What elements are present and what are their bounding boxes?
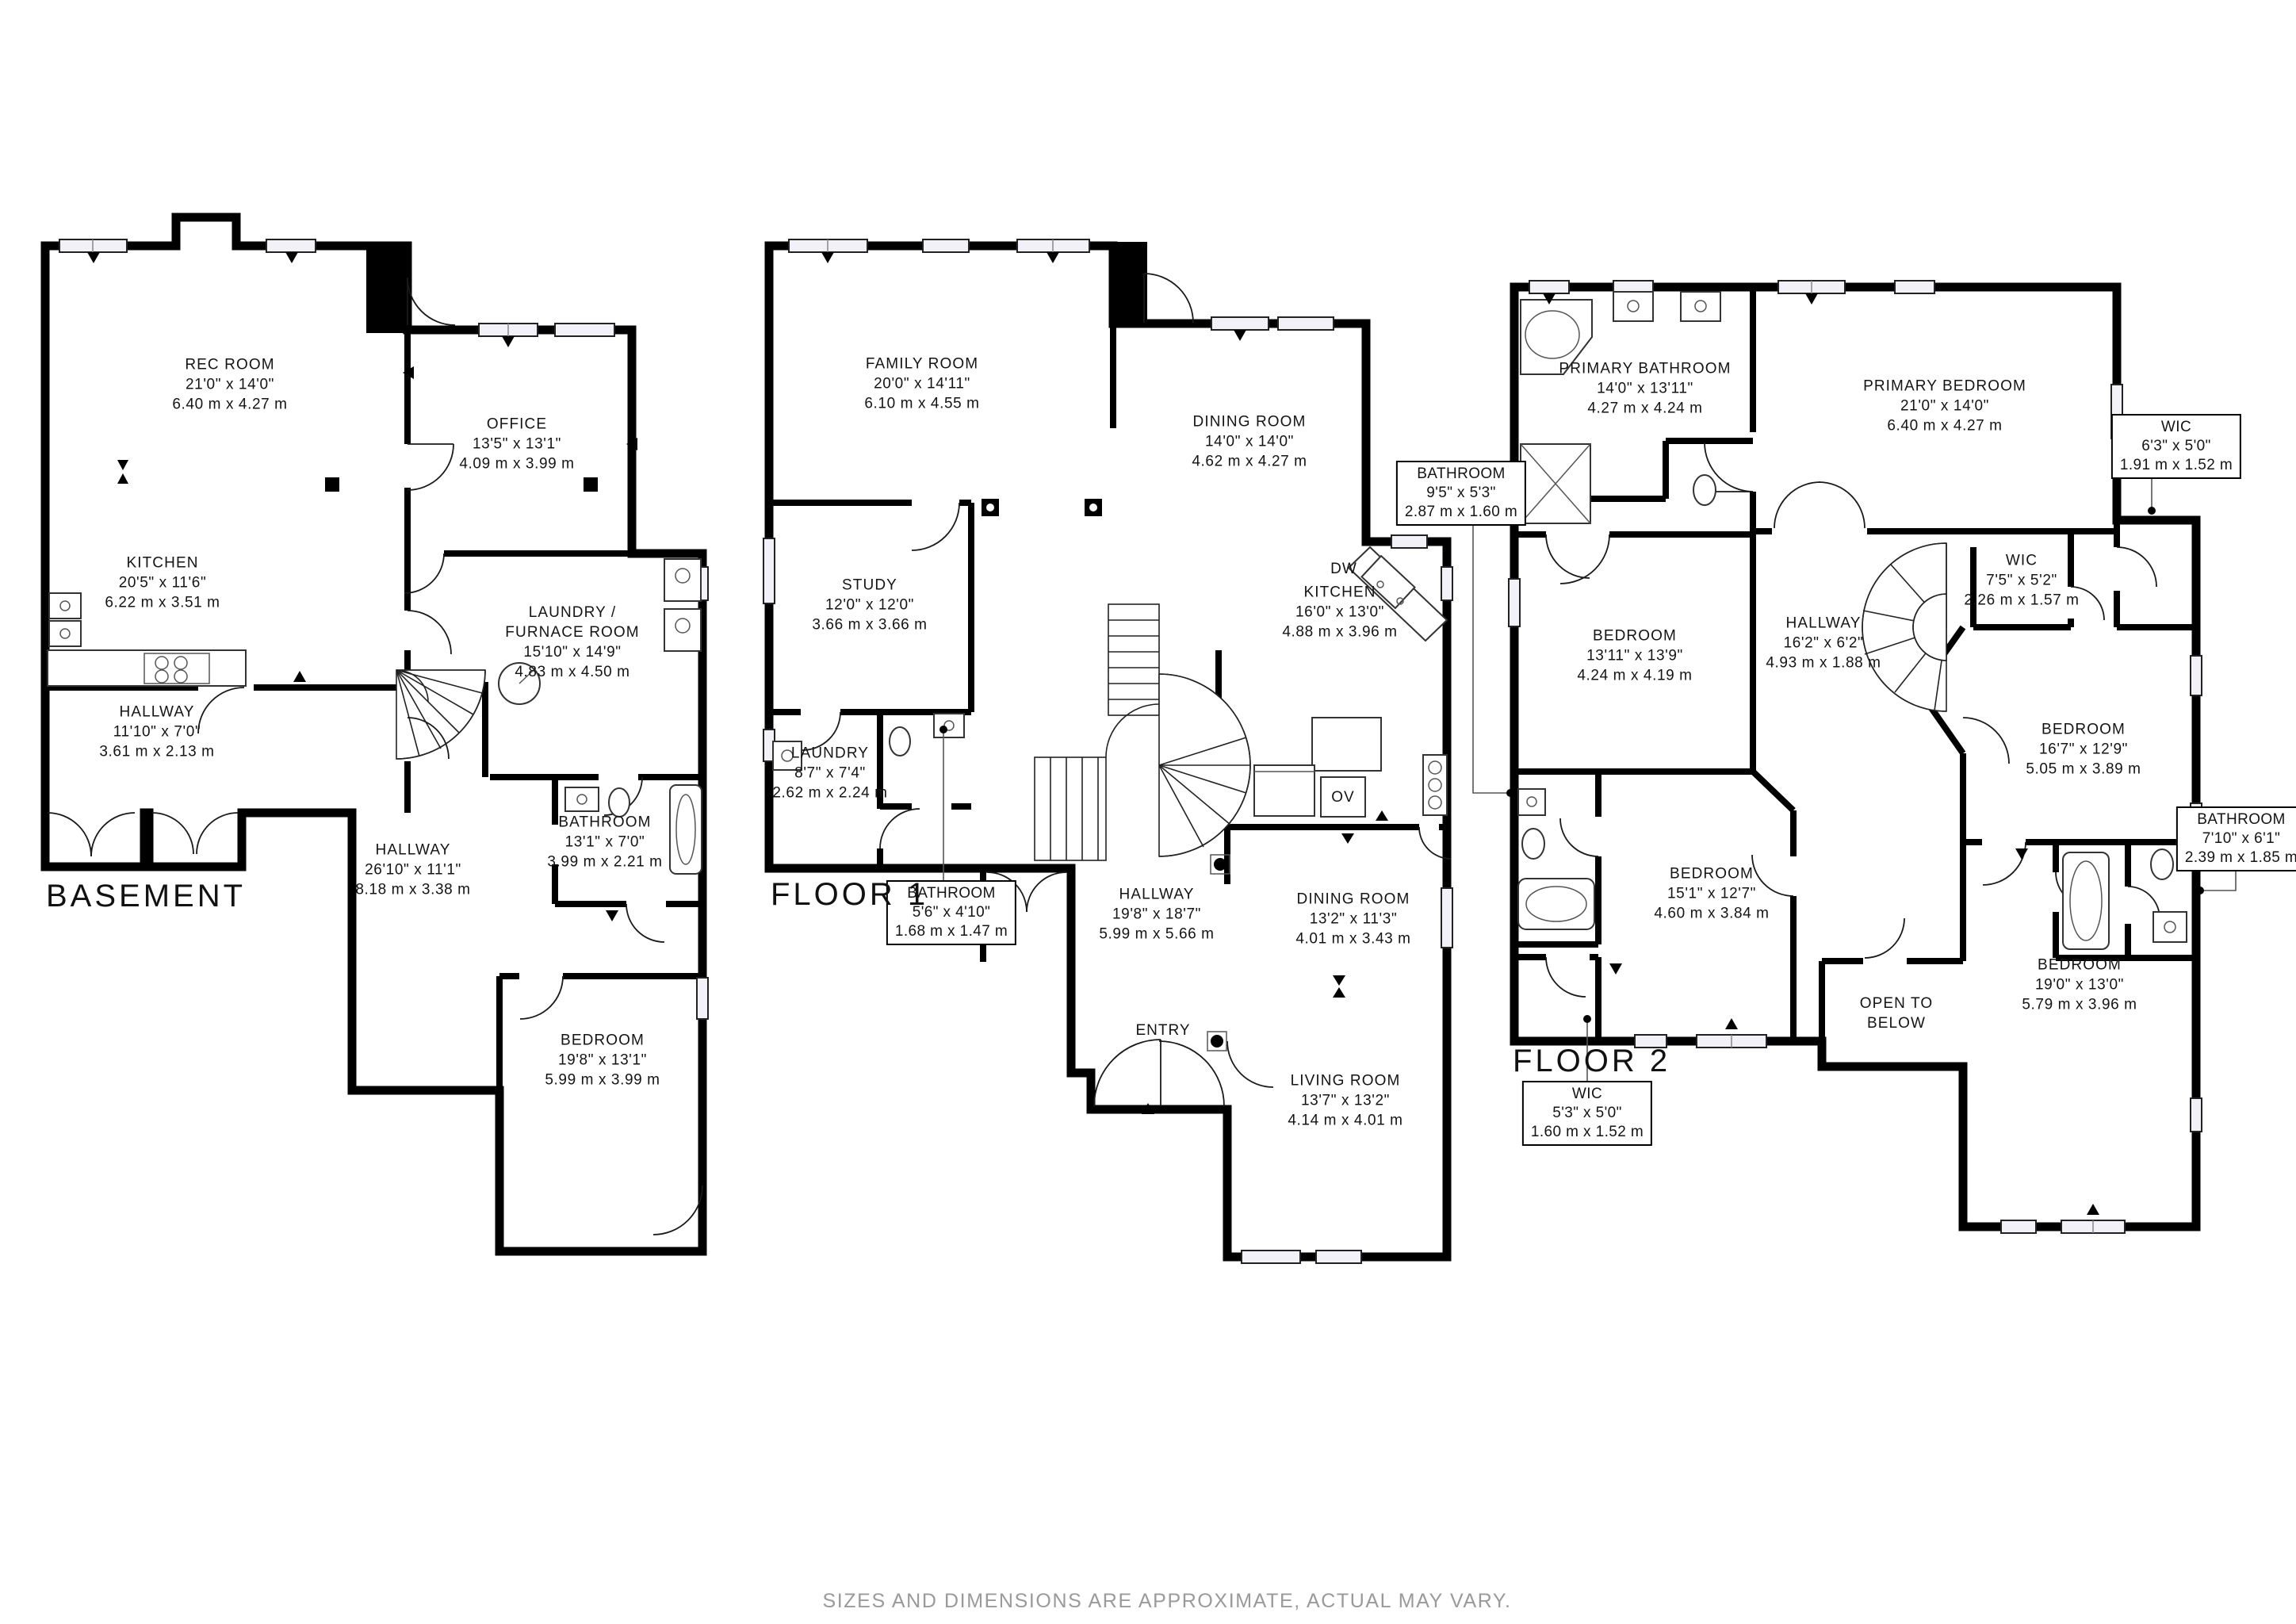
- floor1-room-label-dining-room-bottom: DINING ROOM13'2" x 11'3"4.01 m x 3.43 m: [1295, 890, 1410, 949]
- floor1-ov-label: OV: [1331, 789, 1354, 806]
- floor2-callout-bathroom-left: BATHROOM9'5" x 5'3"2.87 m x 1.60 m: [1396, 461, 1526, 526]
- basement-room-label-rec-room: REC ROOM21'0" x 14'0"6.40 m x 4.27 m: [172, 355, 287, 415]
- floor2-room-label-primary-bathroom: PRIMARY BATHROOM14'0" x 13'11"4.27 m x 4…: [1559, 359, 1731, 419]
- floor2-room-label-bedroom-3: BEDROOM15'1" x 12'7"4.60 m x 3.84 m: [1654, 864, 1769, 924]
- floor2-open-to-below-label: OPEN TOBELOW: [1860, 994, 1934, 1033]
- basement-room-label-bathroom: BATHROOM13'1" x 7'0"3.99 m x 2.21 m: [547, 813, 662, 872]
- floor2-title: FLOOR 2: [1513, 1044, 1670, 1079]
- floor2-room-label-bedroom-2: BEDROOM16'7" x 12'9"5.05 m x 3.89 m: [2026, 720, 2141, 779]
- basement-chimney-block: [366, 243, 411, 333]
- floor2-room-label-wic-mid: WIC7'5" x 5'2"2.26 m x 1.57 m: [1964, 551, 2079, 611]
- disclaimer-text: SIZES AND DIMENSIONS ARE APPROXIMATE, AC…: [822, 1590, 1511, 1613]
- basement-room-label-office: OFFICE13'5" x 13'1"4.09 m x 3.99 m: [459, 415, 574, 474]
- floor1-room-label-family-room: FAMILY ROOM20'0" x 14'11"6.10 m x 4.55 m: [864, 354, 979, 414]
- floor2-room-label-hallway: HALLWAY16'2" x 6'2"4.93 m x 1.88 m: [1766, 614, 1881, 673]
- floor1-entry-label: ENTRY: [1135, 1022, 1190, 1040]
- floor1-room-label-laundry: LAUNDRY8'7" x 7'4"2.62 m x 2.24 m: [772, 744, 887, 803]
- floor2-callout-bathroom-right: BATHROOM7'10" x 6'1"2.39 m x 1.85 m: [2176, 806, 2296, 871]
- basement-room-label-kitchen: KITCHEN20'5" x 11'6"6.22 m x 3.51 m: [105, 553, 220, 613]
- floorplan-canvas: [0, 0, 2296, 1624]
- floor1-dw-label: DW: [1330, 561, 1357, 578]
- floor1-room-label-study: STUDY12'0" x 12'0"3.66 m x 3.66 m: [812, 576, 927, 635]
- basement-room-label-hallway-2: HALLWAY26'10" x 11'1"8.18 m x 3.38 m: [355, 841, 470, 900]
- floor1-room-label-kitchen: KITCHEN16'0" x 13'0"4.88 m x 3.96 m: [1282, 583, 1397, 642]
- floor2-room-label-bedroom-1: BEDROOM13'11" x 13'9"4.24 m x 4.19 m: [1577, 626, 1692, 686]
- basement-title: BASEMENT: [46, 879, 246, 914]
- floor1-title: FLOOR 1: [771, 877, 928, 913]
- floor1-room-label-living-room: LIVING ROOM13'7" x 13'2"4.14 m x 4.01 m: [1288, 1071, 1402, 1131]
- floor2-room-label-primary-bedroom: PRIMARY BEDROOM21'0" x 14'0"6.40 m x 4.2…: [1863, 377, 2026, 436]
- floorplan-page: REC ROOM21'0" x 14'0"6.40 m x 4.27 m OFF…: [0, 0, 2296, 1624]
- floor2-callout-wic-right: WIC6'3" x 5'0"1.91 m x 1.52 m: [2111, 414, 2241, 479]
- floor2-callout-wic-bottom: WIC5'3" x 5'0"1.60 m x 1.52 m: [1522, 1081, 1652, 1146]
- basement-room-label-hallway-1: HALLWAY11'10" x 7'0"3.61 m x 2.13 m: [99, 703, 214, 762]
- floor1-room-label-hallway: HALLWAY19'8" x 18'7"5.99 m x 5.66 m: [1099, 885, 1214, 944]
- floor1-wall-block: [1109, 242, 1147, 326]
- basement-room-label-laundry-furnace: LAUNDRY /FURNACE ROOM15'10" x 14'9"4.83 …: [505, 603, 639, 682]
- floor1-room-label-dining-room-top: DINING ROOM14'0" x 14'0"4.62 m x 4.27 m: [1192, 412, 1307, 472]
- basement-room-label-bedroom: BEDROOM19'8" x 13'1"5.99 m x 3.99 m: [545, 1031, 660, 1090]
- floor2-room-label-bedroom-4: BEDROOM19'0" x 13'0"5.79 m x 3.96 m: [2022, 956, 2137, 1015]
